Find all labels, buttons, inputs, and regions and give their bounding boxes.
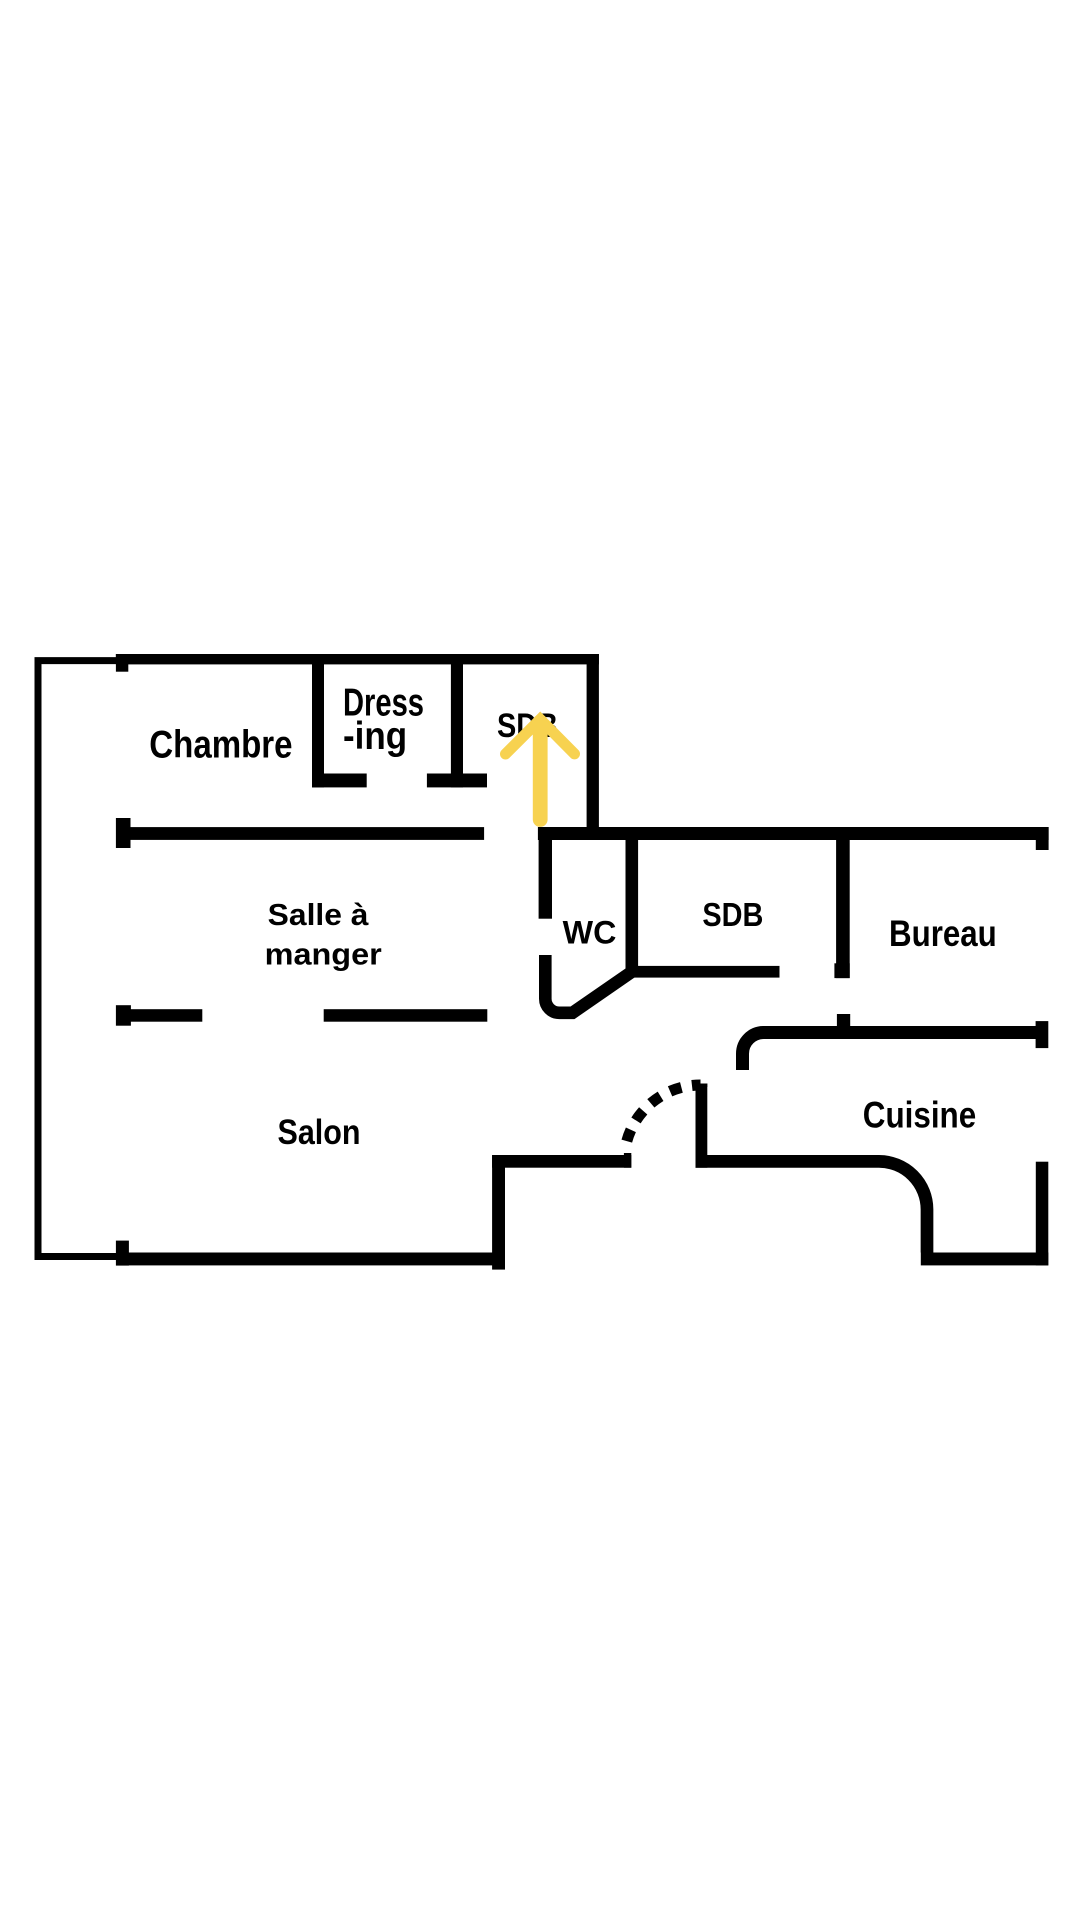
svg-text:Salle à: Salle à bbox=[268, 897, 370, 932]
svg-text:WC: WC bbox=[563, 915, 617, 951]
svg-text:Bureau: Bureau bbox=[889, 913, 997, 954]
svg-text:Chambre: Chambre bbox=[149, 724, 292, 767]
svg-text:SDB: SDB bbox=[702, 896, 763, 933]
svg-text:-ing: -ing bbox=[343, 715, 407, 758]
svg-text:manger: manger bbox=[265, 937, 382, 972]
svg-text:Cuisine: Cuisine bbox=[863, 1094, 976, 1135]
svg-text:Salon: Salon bbox=[278, 1113, 361, 1152]
